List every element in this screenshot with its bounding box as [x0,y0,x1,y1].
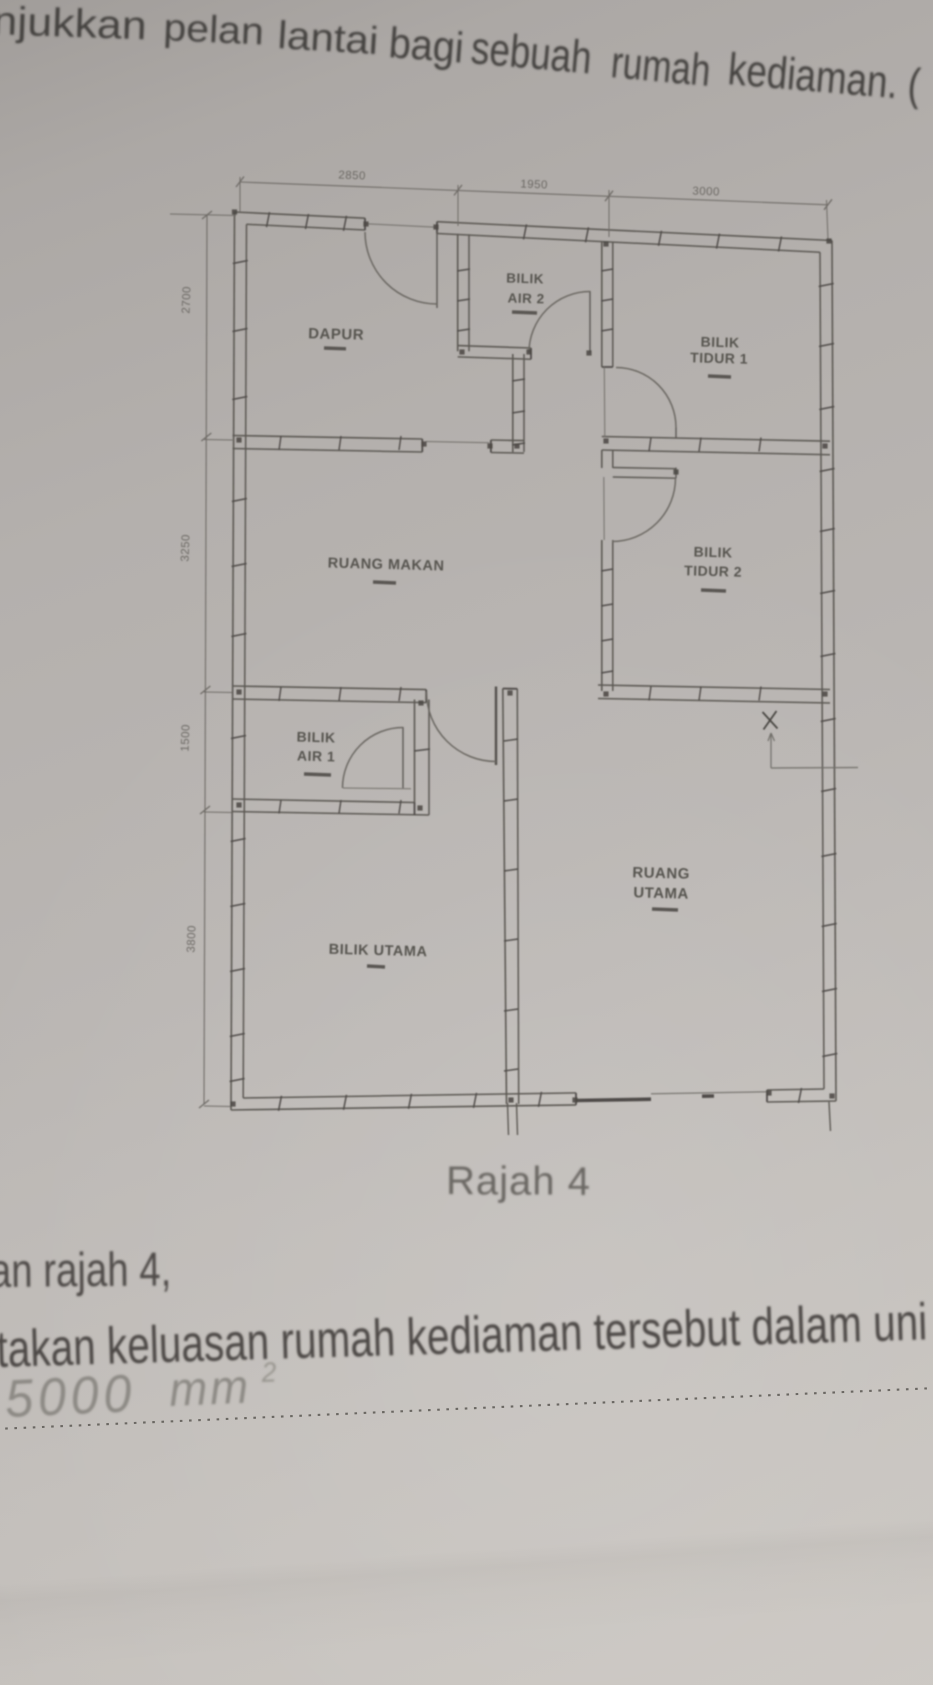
svg-text:BILIK UTAMA: BILIK UTAMA [329,942,428,961]
svg-text:3800: 3800 [186,925,199,953]
svg-text:takan keluasan rumah kediaman: takan keluasan rumah kediaman tersebut d… [0,1293,928,1379]
svg-text:3250: 3250 [180,534,193,562]
svg-text:bagi: bagi [387,19,465,72]
svg-text:UTAMA: UTAMA [633,884,689,902]
svg-text:AIR 1: AIR 1 [297,748,336,765]
svg-text:TIDUR 1: TIDUR 1 [690,349,748,367]
svg-text:AIR 2: AIR 2 [507,291,544,307]
svg-text:1500: 1500 [180,724,193,752]
svg-text:Rajah 4: Rajah 4 [446,1159,591,1204]
svg-text:1950: 1950 [520,178,548,191]
svg-text:sebuah: sebuah [469,21,594,83]
svg-text:BILIK: BILIK [506,271,544,287]
svg-text:2700: 2700 [181,286,194,314]
svg-text:DAPUR: DAPUR [308,325,364,343]
svg-text:BILIK: BILIK [693,543,732,560]
svg-text:RUANG: RUANG [632,864,690,882]
svg-text:BILIK: BILIK [296,728,335,745]
svg-text:njukkan: njukkan [0,0,148,48]
svg-text:lantai: lantai [276,13,379,63]
svg-text:RUANG MAKAN: RUANG MAKAN [328,555,445,574]
svg-text:TIDUR 2: TIDUR 2 [684,562,742,580]
svg-text:kediaman. (: kediaman. ( [726,44,922,110]
svg-text:BILIK: BILIK [700,333,739,350]
svg-text:pelan: pelan [163,6,265,53]
svg-text:an rajah 4,: an rajah 4, [0,1243,172,1298]
svg-text:2850: 2850 [338,169,366,182]
svg-text:3000: 3000 [692,185,720,198]
svg-text:rumah: rumah [609,36,713,96]
